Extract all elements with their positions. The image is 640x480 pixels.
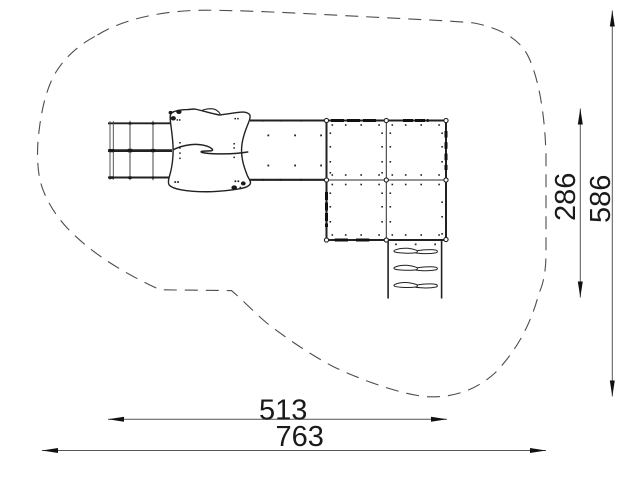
svg-text:586: 586 bbox=[585, 175, 617, 223]
svg-text:763: 763 bbox=[276, 421, 324, 453]
svg-text:286: 286 bbox=[550, 173, 582, 221]
